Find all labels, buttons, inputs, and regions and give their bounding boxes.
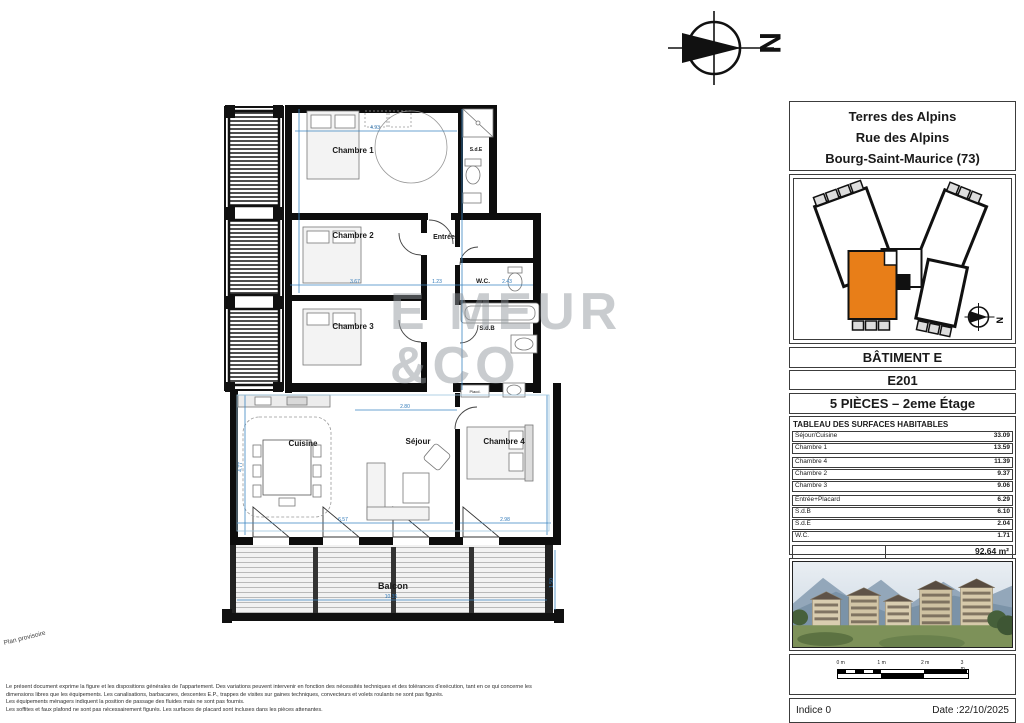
room-label-chambre-1: Chambre 1	[332, 146, 374, 155]
project-street: Rue des Alpins	[790, 127, 1015, 148]
type-floor-label: 5 PIÈCES – 2eme Étage	[830, 396, 975, 411]
date-label: Date :22/10/2025	[932, 705, 1009, 716]
dim-label: 10.35	[385, 594, 398, 600]
dim-label: 1.50	[549, 578, 555, 588]
room-label-chambre-2: Chambre 2	[332, 231, 374, 240]
surface-row: Entrée+Placard6.29	[792, 495, 1013, 506]
left-facade-strip	[225, 105, 283, 392]
key-plan-north-arrow: N	[965, 303, 1005, 331]
room-label-entree: Entrée	[433, 234, 455, 241]
surface-row: Séjour/Cuisine33.09	[792, 431, 1013, 442]
room-label-balcon: Balcon	[378, 581, 408, 591]
unit-box: E201	[789, 370, 1016, 390]
surfaces-table: TABLEAU DES SURFACES HABITABLES Séjour/C…	[789, 416, 1016, 555]
room-label-chambre-3: Chambre 3	[332, 322, 374, 331]
building-box: BÂTIMENT E	[789, 347, 1016, 368]
project-city: Bourg-Saint-Maurice (73)	[790, 148, 1015, 169]
project-address-box: Terres des Alpins Rue des Alpins Bourg-S…	[789, 101, 1016, 171]
plan-sheet: N E MEUR &CO	[0, 0, 1024, 723]
type-floor-box: 5 PIÈCES – 2eme Étage	[789, 393, 1016, 414]
scale-label: 3 m	[961, 660, 969, 672]
title-block: Terres des Alpins Rue des Alpins Bourg-S…	[789, 101, 1018, 723]
building-label: BÂTIMENT E	[863, 350, 942, 365]
surfaces-total: 92.64 m²	[886, 546, 1012, 558]
surfaces-table-header: TABLEAU DES SURFACES HABITABLES	[790, 418, 1015, 430]
scale-label: 0 m	[837, 660, 845, 666]
room-label-cuisine: Cuisine	[289, 439, 318, 448]
key-plan-drawing: N	[794, 179, 1011, 339]
dim-label: 2.98	[500, 517, 510, 523]
indice-label: Indice 0	[796, 705, 831, 716]
surface-row: S.d.B6.10	[792, 507, 1013, 518]
project-name: Terres des Alpins	[790, 106, 1015, 127]
unit-label: E201	[887, 373, 917, 388]
scale-bar: 0 m 1 m 2 m 3 m	[837, 669, 969, 679]
scale-label: 1 m	[877, 660, 885, 666]
dim-label: 4.93	[370, 125, 380, 131]
north-arrow: N	[662, 8, 792, 88]
surface-row: Chambre 113.59	[792, 443, 1013, 454]
room-label-sejour: Séjour	[406, 437, 431, 446]
north-letter: N	[752, 32, 786, 54]
key-plan-box: N	[789, 174, 1016, 344]
surface-row: Chambre 411.39	[792, 457, 1013, 468]
surface-row: Chambre 29.37	[792, 469, 1013, 480]
scale-label: 2 m	[921, 660, 929, 666]
room-label-chambre-4: Chambre 4	[483, 437, 525, 446]
dim-label: 4.77	[238, 462, 244, 472]
plan-status-note: Plan provisoire	[3, 630, 46, 647]
footer-box: Indice 0 Date :22/10/2025	[789, 698, 1016, 723]
building-rendering-photo	[789, 558, 1016, 651]
scale-bar-box: 0 m 1 m 2 m 3 m	[789, 654, 1016, 695]
surface-row: S.d.E2.04	[792, 519, 1013, 530]
room-label-sde: S.d.E	[470, 147, 483, 153]
surfaces-total-row: 92.64 m²	[792, 545, 1013, 559]
dim-label: 2.80	[400, 404, 410, 410]
dim-label: 6.57	[338, 517, 348, 523]
dim-label: 3.67	[350, 279, 360, 285]
key-plan-north-letter: N	[995, 317, 1005, 324]
surface-row: Chambre 39.06	[792, 481, 1013, 492]
watermark: E MEUR &CO	[390, 285, 622, 393]
disclaimer-text: Le présent document exprime la figure et…	[6, 684, 771, 714]
surface-row: W.C.1.71	[792, 531, 1013, 542]
